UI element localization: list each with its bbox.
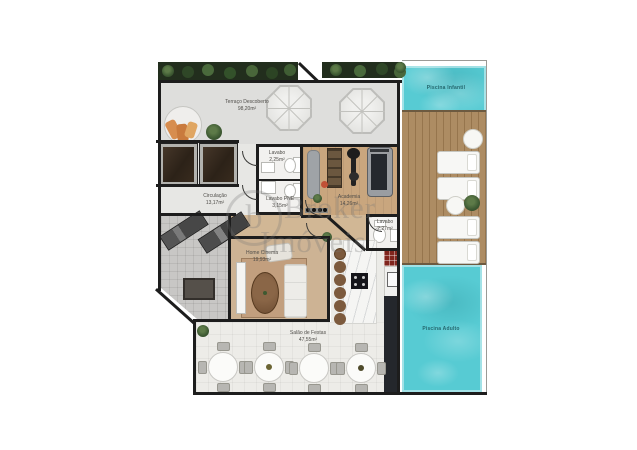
bar-stool bbox=[334, 248, 346, 260]
lavabo-pne-area: 3,15m² bbox=[272, 203, 288, 209]
party-room-label: Salão de Festas 47,55m² bbox=[290, 330, 326, 343]
kitchen-island bbox=[343, 240, 377, 324]
table-plant bbox=[263, 291, 267, 295]
wall bbox=[366, 214, 399, 217]
elevator bbox=[159, 143, 198, 186]
wall bbox=[228, 319, 330, 322]
lavabo-area: 2,25m² bbox=[269, 157, 285, 163]
lavabo-pne-label: Lavabo PNE 3,15m² bbox=[266, 196, 294, 209]
floor-plan: Terraço Descoberto 98,20m² Circulação 13… bbox=[0, 0, 637, 450]
elevator bbox=[199, 143, 238, 186]
burner bbox=[354, 276, 357, 279]
round-daybed bbox=[164, 106, 202, 144]
elliptical-machine bbox=[345, 146, 363, 190]
sofa bbox=[284, 264, 307, 318]
wall bbox=[193, 319, 196, 395]
round-table bbox=[254, 352, 284, 382]
circulation-label: Circulação 13,17m² bbox=[203, 193, 227, 206]
chair bbox=[308, 343, 321, 352]
chair bbox=[244, 361, 253, 374]
sink bbox=[261, 181, 276, 194]
site-boundary-line bbox=[486, 60, 487, 393]
plant-bush bbox=[162, 65, 174, 77]
wall bbox=[318, 80, 402, 83]
chair bbox=[217, 342, 230, 351]
chair bbox=[355, 343, 368, 352]
lounger-pillow bbox=[467, 244, 477, 261]
planter-strip bbox=[158, 62, 298, 80]
lounger-pillow bbox=[467, 154, 477, 171]
sun-lounger bbox=[437, 151, 480, 174]
academia-area: 14,26m² bbox=[340, 201, 358, 207]
wall bbox=[256, 212, 303, 215]
planter-strip bbox=[322, 62, 402, 78]
chair bbox=[377, 362, 386, 375]
deck-plant bbox=[464, 195, 480, 211]
cinema-screen bbox=[236, 262, 246, 314]
round-table-set bbox=[338, 345, 382, 389]
toilet-bowl bbox=[284, 158, 296, 173]
chair bbox=[289, 362, 298, 375]
wall-divider bbox=[257, 179, 301, 181]
sun-lounger bbox=[437, 216, 480, 239]
wall bbox=[366, 248, 399, 251]
treadmill bbox=[367, 147, 393, 197]
wall bbox=[256, 144, 399, 147]
party-room-name: Salão de Festas bbox=[290, 330, 326, 336]
lavabo-label: Lavabo 2,25m² bbox=[269, 150, 285, 163]
lavabo-pne-name: Lavabo PNE bbox=[266, 196, 294, 202]
lavabo-name: Lavabo bbox=[269, 150, 285, 156]
wall bbox=[327, 236, 330, 322]
chair bbox=[217, 383, 230, 392]
wall bbox=[158, 80, 318, 83]
round-table bbox=[208, 352, 238, 382]
site-boundary-top-line bbox=[402, 60, 486, 61]
round-table-set bbox=[200, 344, 244, 388]
wall-elevator-top bbox=[156, 140, 239, 143]
bar-counter bbox=[384, 296, 398, 392]
oval-coffee-table bbox=[251, 272, 279, 314]
circulation-name: Circulação bbox=[203, 193, 227, 199]
plant-bush bbox=[330, 64, 342, 76]
round-table-set bbox=[246, 344, 290, 388]
lavabo2-area: 2,27m² bbox=[377, 226, 393, 232]
deck-round-table bbox=[463, 129, 483, 149]
terrace-area: 98,20m² bbox=[238, 106, 256, 112]
round-table bbox=[299, 353, 329, 383]
chair bbox=[198, 361, 207, 374]
circulation-area: 13,17m² bbox=[206, 200, 224, 206]
round-table bbox=[346, 353, 376, 383]
deck-side-table bbox=[446, 196, 465, 215]
sun-lounger bbox=[437, 241, 480, 264]
terrace-name: Terraço Descoberto bbox=[225, 99, 269, 105]
cooktop bbox=[351, 273, 368, 289]
kettlebell bbox=[321, 181, 328, 188]
wall bbox=[300, 146, 303, 216]
lavabo2-label: Lavabo 2,27m² bbox=[377, 219, 393, 232]
treadmill-belt bbox=[371, 154, 387, 190]
wall-elevator-bottom bbox=[156, 184, 239, 187]
academia-name: Academia bbox=[338, 194, 360, 200]
weight-rack bbox=[327, 148, 342, 188]
spa-mat bbox=[183, 278, 215, 300]
sink bbox=[261, 162, 275, 173]
academia-label: Academia 14,26m² bbox=[338, 194, 360, 207]
round-table-set bbox=[291, 345, 335, 389]
chair bbox=[263, 342, 276, 351]
party-room-plant bbox=[197, 325, 209, 337]
table-centerpiece bbox=[266, 364, 272, 370]
corner-plant bbox=[395, 62, 406, 73]
wall-bottom bbox=[193, 392, 487, 395]
elliptical-wheel bbox=[349, 172, 359, 181]
party-room-area: 47,55m² bbox=[299, 337, 317, 343]
elliptical-wheel bbox=[347, 148, 360, 159]
home-cinema-name: Home Cinema bbox=[246, 250, 278, 256]
adult-pool-label: Piscina Adulto bbox=[422, 326, 459, 332]
wine-rack bbox=[384, 250, 398, 266]
chair bbox=[336, 362, 345, 375]
wall bbox=[158, 213, 236, 216]
terrace-label: Terraço Descoberto 98,20m² bbox=[225, 99, 269, 112]
wall bbox=[228, 236, 231, 322]
deck-edge-top bbox=[402, 110, 486, 112]
terrace-potted-plant bbox=[206, 124, 222, 140]
home-cinema-area: 19,93m² bbox=[253, 257, 271, 263]
exercise-mat bbox=[307, 150, 320, 199]
home-cinema-label: Home Cinema 19,93m² bbox=[246, 250, 278, 263]
lounger-pillow bbox=[467, 219, 477, 236]
wall-right bbox=[397, 80, 400, 395]
wall bbox=[195, 319, 231, 322]
lavabo2-name: Lavabo bbox=[377, 219, 393, 225]
treadmill-console bbox=[370, 149, 389, 152]
chair bbox=[263, 383, 276, 392]
table-centerpiece bbox=[358, 365, 364, 371]
kids-pool-label: Piscina Infantil bbox=[427, 85, 466, 91]
